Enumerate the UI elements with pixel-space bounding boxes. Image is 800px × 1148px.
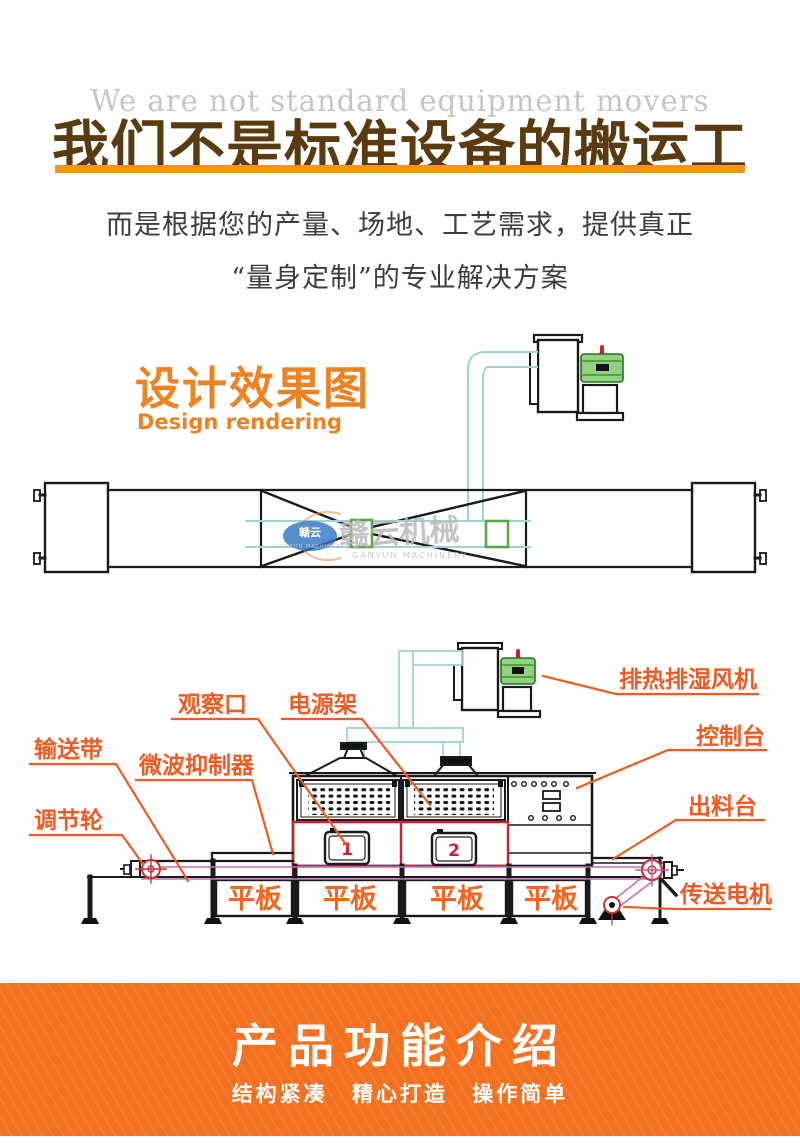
brand-badge-text: 赣云 <box>299 525 321 539</box>
machine-body: 1 2 <box>290 773 595 877</box>
label-observation-port: 观察口 <box>178 691 247 718</box>
technical-diagrams: 赣云 GANYUN MACHINERY 赣云机械 GANYUN MACHINER… <box>0 0 800 1148</box>
conveyor-motor-assembly <box>598 897 626 925</box>
fan-unit-top <box>530 335 623 420</box>
page: We are not standard equipment movers 我们不… <box>0 0 800 1148</box>
flat-plate-label-2: 平板 <box>323 884 377 915</box>
machine-feet <box>81 918 669 924</box>
observation-window-2: 2 <box>432 829 476 865</box>
flat-plate-label-4: 平板 <box>524 884 578 915</box>
side-view-diagram: 1 2 <box>30 643 772 925</box>
label-exhaust-fan: 排热排湿风机 <box>619 667 757 693</box>
flat-plate-label-3: 平板 <box>430 884 484 915</box>
label-control-console: 控制台 <box>696 723 765 750</box>
flat-plate-label-1: 平板 <box>228 884 282 915</box>
label-conveyor-motor: 传送电机 <box>679 881 772 908</box>
duct-pipes-side <box>347 651 463 758</box>
brand-watermark: 赣云 GANYUN MACHINERY 赣云机械 GANYUN MACHINER… <box>276 512 468 560</box>
label-discharge-table: 出料台 <box>688 793 757 820</box>
fan-unit-side <box>454 643 540 717</box>
label-adjust-wheel: 调节轮 <box>34 807 103 834</box>
label-microwave-suppressor: 微波抑制器 <box>138 752 255 779</box>
label-conveyor-belt: 输送带 <box>34 736 103 763</box>
footer-title: 产品功能介绍 <box>0 1010 800 1076</box>
footer-tagline: 结构紧凑 精心打造 操作简单 <box>0 1078 800 1108</box>
fan-motor-icon <box>501 649 535 684</box>
label-power-rack: 电源架 <box>288 692 357 718</box>
top-view-diagram: 赣云 GANYUN MACHINERY 赣云机械 GANYUN MACHINER… <box>34 335 766 572</box>
window-number-2: 2 <box>448 841 460 861</box>
brand-name-cn: 赣云机械 <box>339 513 461 554</box>
brand-badge-sub: GANYUN MACHINERY <box>276 544 345 550</box>
window-number-1: 1 <box>341 840 353 860</box>
brand-name-en: GANYUN MACHINERY <box>352 551 468 560</box>
fan-motor-icon <box>581 345 623 382</box>
